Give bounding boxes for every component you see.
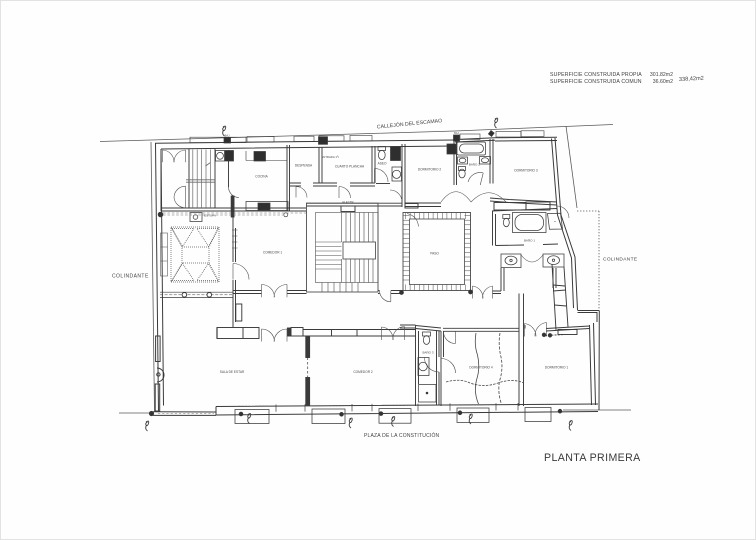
svg-text:COCINA: COCINA — [255, 175, 268, 179]
svg-text:COMEDOR 1: COMEDOR 1 — [263, 251, 283, 255]
svg-text:BAÑO 1: BAÑO 1 — [524, 238, 535, 243]
svg-text:CALLEJÓN DEL ESCAMAO: CALLEJÓN DEL ESCAMAO — [377, 117, 443, 130]
svg-text:COLINDANTE: COLINDANTE — [112, 274, 149, 280]
svg-text:SUPERFICIE CONSTRUIDA PROPIA: SUPERFICIE CONSTRUIDA PROPIA — [550, 72, 642, 78]
svg-text:CUARTO PLANCHA: CUARTO PLANCHA — [335, 165, 365, 169]
svg-text:DESPENSA: DESPENSA — [295, 164, 313, 168]
svg-text:SALA DE ESTAR: SALA DE ESTAR — [220, 370, 245, 374]
svg-text:338,42m2: 338,42m2 — [679, 76, 704, 83]
svg-text:ESTUFA: ESTUFA — [204, 214, 216, 218]
svg-text:PASO: PASO — [430, 252, 439, 256]
svg-text:BAJ: BAJ — [225, 133, 230, 137]
svg-text:36.60m2: 36.60m2 — [653, 79, 673, 85]
svg-text:BAÑO 2: BAÑO 2 — [469, 162, 480, 167]
svg-text:ENTRADA 1ºI: ENTRADA 1ºI — [321, 155, 339, 159]
svg-text:DORMITORIO 1: DORMITORIO 1 — [545, 366, 569, 370]
svg-text:DORMITORIO 3: DORMITORIO 3 — [514, 169, 538, 173]
svg-text:PLAZA DE LA CONSTITUCIÓN: PLAZA DE LA CONSTITUCIÓN — [364, 432, 440, 439]
svg-text:DORMITORIO 2: DORMITORIO 2 — [418, 168, 442, 172]
svg-text:ASEO: ASEO — [378, 162, 387, 166]
svg-text:301.82m2: 301.82m2 — [650, 72, 673, 78]
svg-text:SUPERFICIE CONSTRUIDA COMUN: SUPERFICIE CONSTRUIDA COMUN — [550, 79, 642, 85]
svg-text:ELECTR: ELECTR — [342, 200, 353, 204]
svg-text:BAÑO 3: BAÑO 3 — [422, 350, 433, 355]
svg-text:DORMITORIO 4: DORMITORIO 4 — [469, 366, 493, 370]
svg-text:COMEDOR 2: COMEDOR 2 — [353, 370, 373, 374]
svg-text:BAJ: BAJ — [454, 131, 459, 135]
svg-text:PLANTA PRIMERA: PLANTA PRIMERA — [544, 452, 641, 464]
svg-text:COLINDANTE: COLINDANTE — [603, 257, 637, 263]
